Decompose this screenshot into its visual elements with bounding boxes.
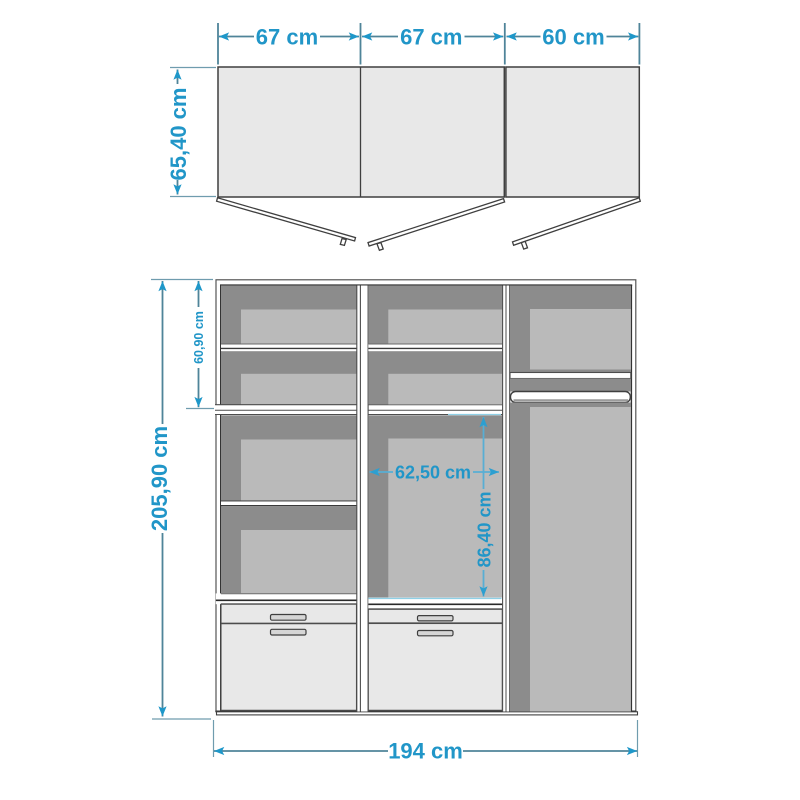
svg-text:67 cm: 67 cm: [256, 25, 318, 50]
svg-text:65,40 cm: 65,40 cm: [166, 88, 191, 181]
svg-text:60 cm: 60 cm: [542, 25, 604, 50]
svg-text:67 cm: 67 cm: [400, 25, 462, 50]
svg-text:60,90 cm: 60,90 cm: [192, 311, 206, 364]
svg-text:194 cm: 194 cm: [388, 739, 463, 764]
svg-text:62,50 cm: 62,50 cm: [395, 463, 471, 483]
svg-text:205,90 cm: 205,90 cm: [147, 426, 172, 531]
svg-text:86,40 cm: 86,40 cm: [475, 491, 495, 567]
